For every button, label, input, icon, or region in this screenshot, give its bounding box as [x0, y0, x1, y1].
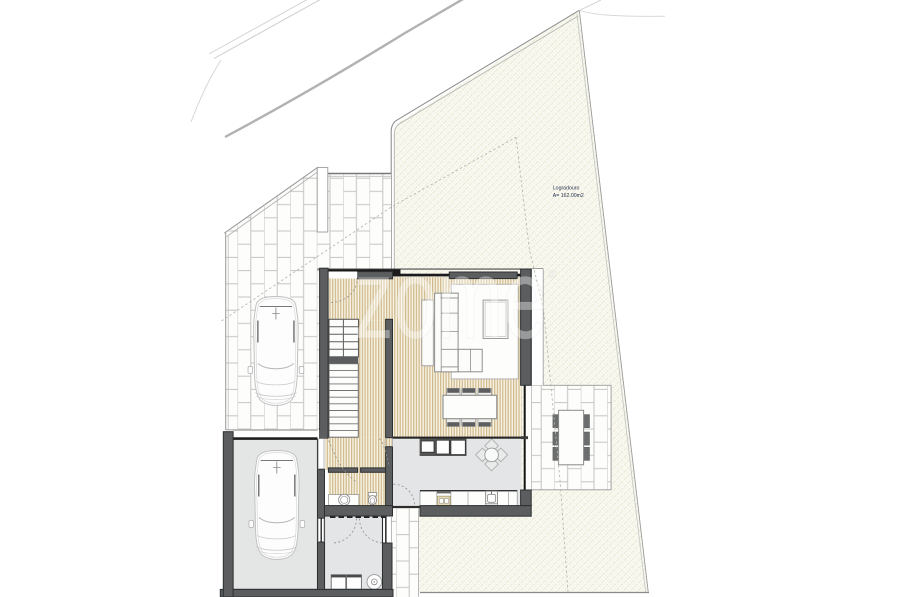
svg-text:Logradouro: Logradouro: [553, 185, 580, 191]
svg-text:zome: zome: [354, 236, 547, 363]
svg-text:®: ®: [549, 269, 557, 281]
svg-text:A= 162.00m2: A= 162.00m2: [553, 193, 584, 199]
